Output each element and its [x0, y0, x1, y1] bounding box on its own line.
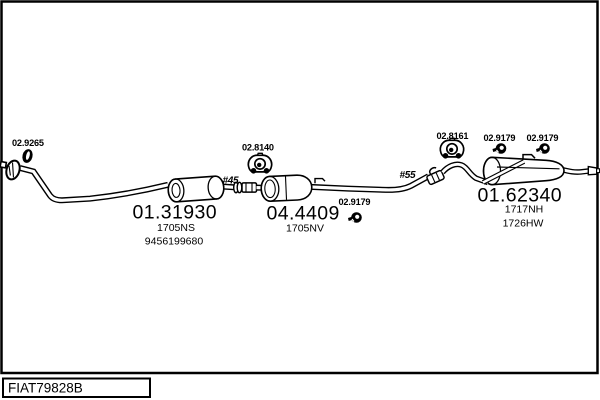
catalyst-drawing: [261, 175, 313, 202]
front-muffler-code: 01.31930: [133, 202, 218, 224]
rear-muffler-variant-top: 1717NH: [505, 204, 544, 216]
exhaust-diagram-canvas: 02.9265 02.8140 02.9179 02.8161 02.9179 …: [0, 0, 600, 400]
rear-clamp-left-label: 02.9179: [484, 133, 516, 143]
rear-hanger-label: 02.8161: [437, 131, 469, 141]
front-gasket-label: 02.9265: [12, 138, 44, 148]
rubber-hanger-icon-rear: [440, 138, 463, 158]
exhaust-diagram-page: 02.9265 02.8140 02.9179 02.8161 02.9179 …: [0, 0, 600, 400]
rear-diameter-callout: #55: [400, 170, 417, 181]
drawing-code: FIAT79828B: [8, 381, 83, 396]
front-muffler-variant: 1705NS: [157, 222, 195, 234]
rear-clamp-right-label: 02.9179: [527, 133, 559, 143]
catalyst-code: 04.4409: [267, 203, 340, 225]
catalyst-variant: 1705NV: [286, 223, 324, 235]
rear-muffler-variant-bottom: 1726HW: [503, 218, 544, 230]
front-muffler-oem: 9456199680: [145, 236, 204, 248]
rubber-hanger-icon-mid: [248, 153, 271, 173]
front-muffler-drawing: [167, 176, 224, 203]
mid-clamp-label: 02.9179: [339, 197, 371, 207]
mid-hanger-label: 02.8140: [242, 143, 274, 153]
front-diameter-callout: #45: [223, 176, 240, 187]
